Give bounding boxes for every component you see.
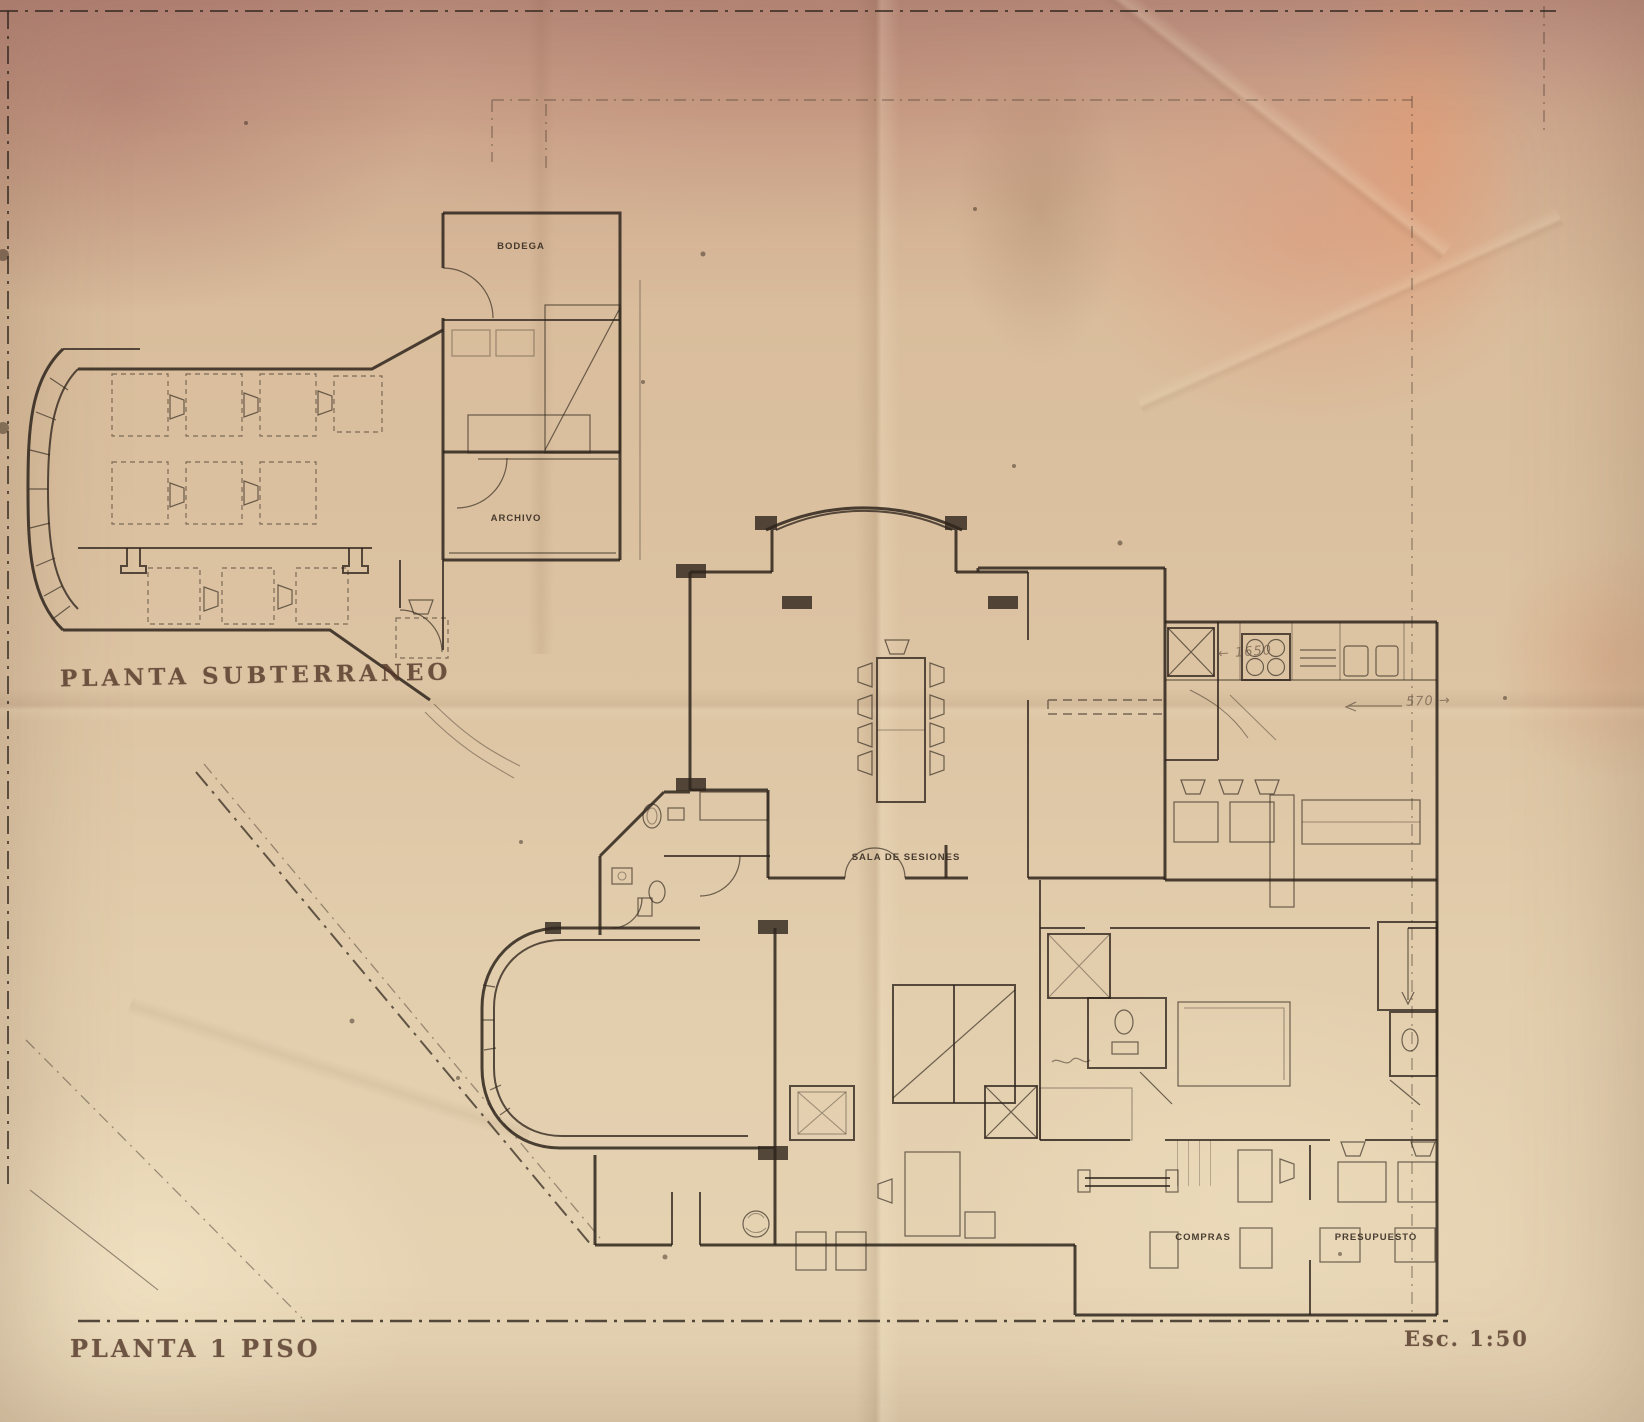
scale-label: Esc. 1:50 <box>1404 1326 1529 1351</box>
stairs-main <box>790 985 1132 1140</box>
toilet <box>1402 1029 1418 1051</box>
plant <box>743 1211 769 1237</box>
conference-table <box>858 640 944 802</box>
basement-desks <box>112 374 448 658</box>
arch-bay <box>755 508 967 572</box>
title-first-floor-plan: PLANTA 1 PISO <box>70 1334 321 1363</box>
basement-plan <box>28 213 640 778</box>
pencil-dimension-570: 570 → <box>1406 693 1451 710</box>
floor-plan-drawing <box>0 0 1644 1422</box>
room-label-bodega: BODEGA <box>497 241 545 252</box>
room-label-presupuesto: PRESUPUESTO <box>1335 1232 1418 1243</box>
paper-specks <box>244 121 1507 1260</box>
first-floor-plan <box>482 508 1437 1315</box>
furniture-bottom <box>743 1002 1436 1270</box>
sink <box>1376 646 1398 676</box>
stairs-service <box>1378 922 1437 1010</box>
toilet <box>1115 1010 1133 1034</box>
office-right <box>1174 780 1420 907</box>
kitchen <box>1165 622 1437 680</box>
room-label-sala-de-sesiones: SALA DE SESIONES <box>852 852 961 863</box>
pencil-marks <box>1052 690 1402 1063</box>
room-label-archivo: ARCHIVO <box>491 513 542 524</box>
sink <box>1344 646 1368 676</box>
blueprint-scan: BODEGA ARCHIVO SALA DE SESIONES COMPRAS … <box>0 0 1644 1422</box>
bathrooms <box>612 792 1437 1105</box>
basin <box>612 868 632 884</box>
basement-stairs <box>452 305 620 453</box>
site-boundary-lines <box>26 764 600 1318</box>
basement-walls <box>28 213 640 778</box>
room-label-compras: COMPRAS <box>1175 1232 1231 1243</box>
